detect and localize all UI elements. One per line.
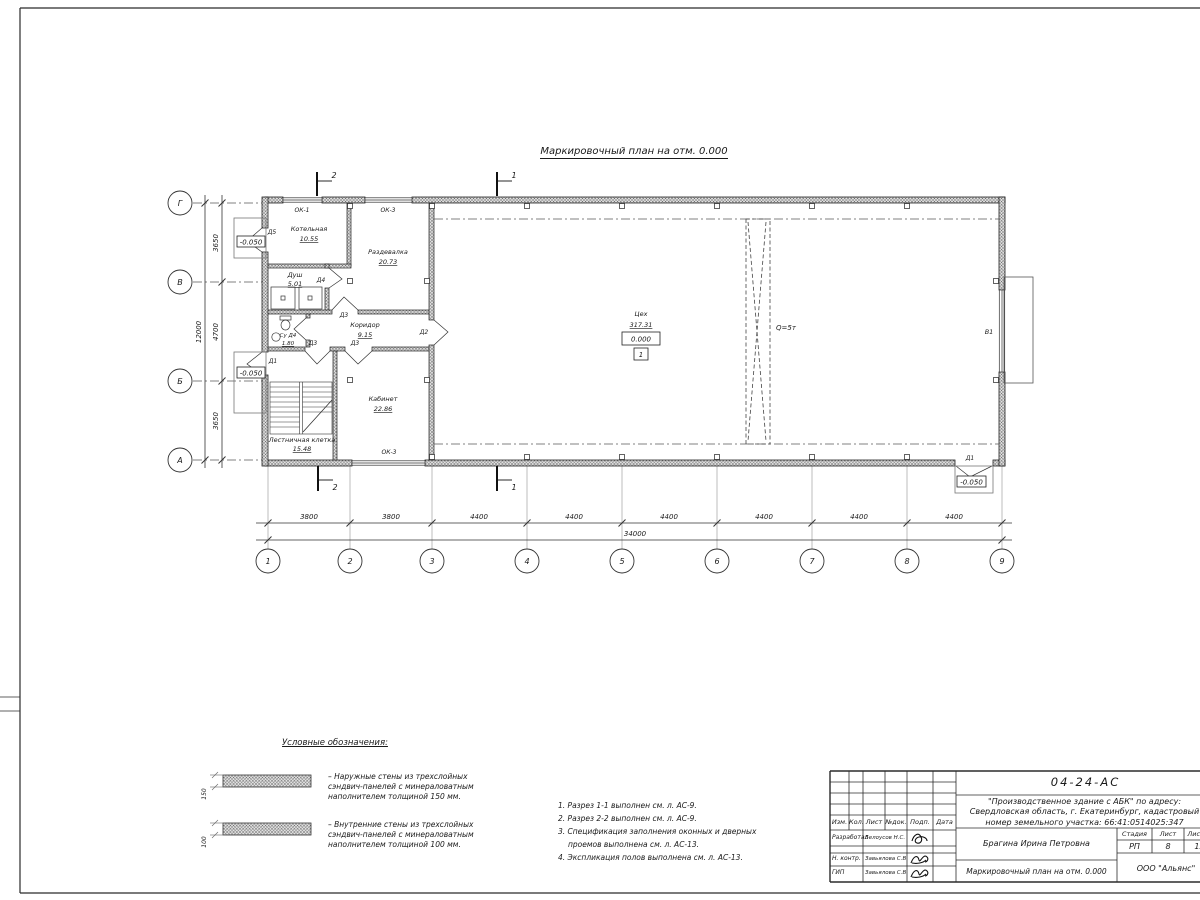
crane: Q=5т (434, 219, 999, 444)
floor-plan-drawing: 3800 3800 4400 4400 4400 4400 4400 4400 … (0, 0, 1200, 900)
axis-6: 6 (714, 557, 719, 566)
tb-role-razrabotal: Разработал (832, 834, 868, 841)
axis-v: В (177, 278, 183, 287)
dim-total: 34000 (624, 530, 647, 538)
room-tseh-area: 317.31 (630, 321, 653, 329)
door-d1-left-label: Д1 (268, 358, 278, 365)
titleblock-project-description: "Производственное здание с АБК" по адрес… (958, 797, 1200, 828)
elev-zero: 0.000 (631, 336, 652, 344)
window-ok3-top-label: ОК-3 (381, 207, 396, 214)
note-2: 2. Разрез 2-2 выполнен см. л. АС-9. (558, 812, 770, 825)
axis-8: 8 (904, 557, 909, 566)
axis-4: 4 (524, 557, 529, 566)
room-koridor-area: 9.15 (358, 331, 372, 339)
tb-name-belousov: Белоусов Н.С. (865, 835, 905, 841)
signature-gip (911, 870, 928, 877)
tb-company: ООО "Альянс" (1117, 864, 1200, 873)
walls-exterior (262, 197, 1005, 466)
elev-minus-top: -0.050 (240, 239, 263, 247)
drawing-sheet: 3800 3800 4400 4400 4400 4400 4400 4400 … (0, 0, 1200, 900)
dim-1-2: 3800 (300, 513, 318, 521)
room-lestnitsa-name: Лестничная клетка (268, 436, 336, 444)
dim-left-total: 12000 (195, 320, 203, 343)
titleblock-doc-number: 04-24-АС (956, 775, 1200, 789)
elevation-marks: -0.050 -0.050 -0.050 0.000 1 (237, 236, 986, 487)
legend-symbols: 150 100 (201, 772, 311, 848)
room-razdevalka-area: 20.73 (379, 258, 398, 266)
window-labels: ОК-1 ОК-3 ОК-3 (295, 207, 397, 456)
section-1-bottom-label: 1 (511, 483, 516, 492)
axis-5: 5 (619, 557, 624, 566)
room-kotelnaya-area: 10.55 (300, 235, 319, 243)
dim-v-b: 4700 (212, 323, 220, 341)
signatures (911, 834, 928, 877)
tb-supervisor-name: Брагина Ирина Петровна (958, 839, 1115, 848)
tb-col-podp: Подп. (907, 818, 933, 826)
dim-5-6: 4400 (660, 513, 678, 521)
dim-2-3: 3800 (382, 513, 400, 521)
tb-stage-label: Стадия (1117, 830, 1152, 838)
room-kotelnaya-name: Котельная (291, 225, 328, 233)
dim-7-8: 4400 (850, 513, 868, 521)
dim-6-7: 4400 (755, 513, 773, 521)
toilet-icon (280, 316, 291, 320)
axis-2: 2 (347, 557, 352, 566)
tb-col-list: Лист (863, 818, 885, 826)
axis-9: 9 (999, 557, 1004, 566)
room-kabinet-area: 22.86 (374, 405, 393, 413)
room-labels: Котельная 10.55 Раздевалка 20.73 Душ 5.0… (268, 225, 653, 453)
axis-a: А (176, 456, 182, 465)
page-title: Маркировочный план на отм. 0.000 (494, 146, 774, 157)
axis-3: 3 (429, 557, 434, 566)
tb-col-ndok: №док. (885, 818, 907, 826)
tb-col-data: Дата (933, 818, 956, 826)
note-4: 4. Экспликация полов выполнена см. л. АС… (558, 851, 770, 864)
dim-g-v: 3650 (212, 234, 220, 252)
shower-stall-2 (299, 287, 322, 309)
door-labels: Д5 Д1 Д1 Д2 Д3 Д3 Д3 Д4 (267, 229, 975, 462)
elev-minus-mid: -0.050 (240, 370, 263, 378)
dim-8-9: 4400 (945, 513, 963, 521)
dim-4-5: 4400 (565, 513, 583, 521)
door-d3-top-label: Д3 (339, 312, 349, 319)
room-razdevalka-name: Раздевалка (368, 248, 408, 256)
door-d4-label: Д4 (316, 277, 326, 284)
tb-name-zavyalova-1: Завьялова С.В (865, 856, 906, 862)
door-d1-right-label: Д1 (965, 455, 975, 462)
shower-stall-1 (271, 287, 295, 309)
window-ok1-label: ОК-1 (295, 207, 310, 214)
gate-v1: В1 (985, 277, 1033, 383)
legend-item-interior-walls: – Внутренние стены из трехслойных сэндви… (328, 820, 503, 850)
door-d5-label: Д5 (267, 229, 277, 236)
room-dush-name: Душ (287, 271, 303, 279)
dim-3-4: 4400 (470, 513, 488, 521)
doors (247, 228, 992, 477)
note-1: 1. Разрез 1-1 выполнен см. л. АС-9. (558, 799, 770, 812)
section-2-bottom-label: 2 (332, 483, 337, 492)
axis-b: Б (177, 377, 183, 386)
crane-capacity-label: Q=5т (776, 324, 797, 332)
stairs (270, 382, 332, 434)
tb-sheet-label: Лист (1152, 830, 1184, 838)
tb-stage-value: РП (1117, 842, 1152, 851)
section-1-top-label: 1 (511, 171, 516, 180)
door-d3-left-label: Д3 (308, 340, 318, 347)
legend-dim-150: 150 (201, 788, 208, 800)
tb-role-nkontr: Н. контр. (832, 855, 861, 862)
door-d3-right-label: Д3 (350, 340, 360, 347)
room-tseh-name: Цех (635, 310, 648, 318)
column-marks (348, 204, 999, 460)
tb-col-izm: Изм. (830, 818, 849, 826)
room-lestnitsa-area: 15.48 (293, 445, 312, 453)
axis-g: Г (178, 199, 183, 208)
gate-v1-label: В1 (985, 328, 994, 336)
note-3: 3. Спецификация заполнения оконных и две… (558, 825, 770, 851)
tb-name-zavyalova-2: Завьялова С.В (865, 870, 906, 876)
room-su-area: 1.80 (282, 341, 295, 347)
legend-dim-100: 100 (201, 836, 208, 848)
walls-interior (268, 203, 434, 460)
tb-col-kol: Кол. (849, 818, 863, 826)
notes-list: 1. Разрез 1-1 выполнен см. л. АС-9. 2. Р… (558, 799, 770, 864)
room-koridor-name: Коридор (350, 321, 380, 329)
signature-razrabotal (912, 834, 927, 843)
legend-item-exterior-walls: – Наружные стены из трехслойных сэндвич-… (328, 772, 503, 802)
tb-sheets-value: 13 (1184, 842, 1200, 851)
tb-drawing-title: Маркировочный план на отм. 0.000 (958, 867, 1115, 876)
dim-b-a: 3650 (212, 412, 220, 430)
room-kabinet-name: Кабинет (369, 395, 398, 403)
windows (283, 198, 1005, 465)
legend-heading: Условные обозначения: (282, 738, 388, 748)
door-d2-label: Д2 (419, 329, 429, 336)
window-ok3-bottom-label: ОК-3 (382, 449, 397, 456)
tb-role-gip: ГИП (832, 869, 844, 876)
signature-nkontr (911, 856, 928, 863)
tb-sheets-label: Листов (1184, 830, 1200, 838)
elev-minus-br: -0.050 (960, 479, 983, 487)
room-su-name: Су Д4 (280, 333, 297, 339)
section-2-top-label: 2 (331, 171, 336, 180)
axis-1: 1 (265, 557, 270, 566)
tb-sheet-value: 8 (1152, 842, 1184, 851)
floor-type-mark: 1 (639, 351, 643, 359)
